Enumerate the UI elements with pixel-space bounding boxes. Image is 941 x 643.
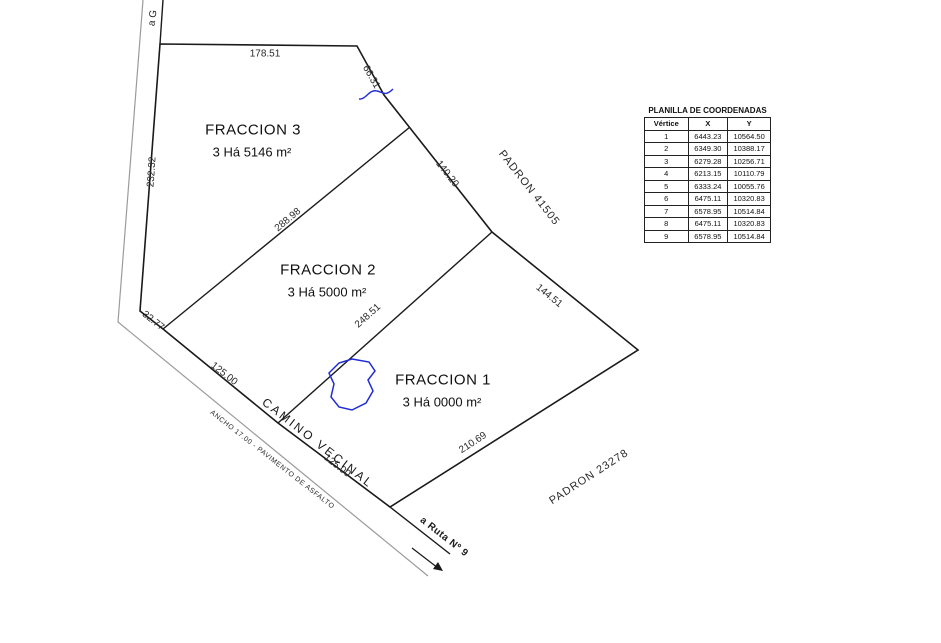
cell-x: 6333.24 — [688, 180, 728, 193]
cell-y: 10320.83 — [728, 218, 771, 231]
fraccion-3-area: 3 Há 5146 m² — [213, 145, 292, 160]
coordinates-table: PLANILLA DE COORDENADAS Vértice X Y 1 64… — [644, 106, 771, 243]
cell-x: 6578.95 — [688, 230, 728, 243]
cell-vertice: 6 — [645, 193, 689, 206]
table-row: 1 6443.23 10564.50 — [645, 130, 771, 143]
table-row: 4 6213.15 10110.79 — [645, 168, 771, 181]
cell-vertice: 5 — [645, 180, 689, 193]
cell-x: 6279.28 — [688, 155, 728, 168]
cell-vertice: 9 — [645, 230, 689, 243]
table-row: 9 6578.95 10514.84 — [645, 230, 771, 243]
col-header-x: X — [688, 118, 728, 131]
table-row: 8 6475.11 10320.83 — [645, 218, 771, 231]
coordinates-table-grid: Vértice X Y 1 6443.23 10564.50 2 6349.30… — [644, 117, 771, 243]
cell-vertice: 7 — [645, 205, 689, 218]
cell-y: 10564.50 — [728, 130, 771, 143]
cell-y: 10055.76 — [728, 180, 771, 193]
table-row: 6 6475.11 10320.83 — [645, 193, 771, 206]
cell-y: 10320.83 — [728, 193, 771, 206]
fraccion-1-area: 3 Há 0000 m² — [403, 395, 482, 410]
col-header-vertice: Vértice — [645, 118, 689, 131]
table-row: 2 6349.30 10388.17 — [645, 143, 771, 156]
survey-plan-page: FRACCION 3 3 Há 5146 m² FRACCION 2 3 Há … — [0, 0, 941, 643]
cell-x: 6213.15 — [688, 168, 728, 181]
cell-x: 6578.95 — [688, 205, 728, 218]
cell-vertice: 1 — [645, 130, 689, 143]
cell-x: 6475.11 — [688, 193, 728, 206]
cell-vertice: 4 — [645, 168, 689, 181]
fraccion-1-title: FRACCION 1 — [395, 372, 491, 389]
cell-vertice: 2 — [645, 143, 689, 156]
pond-outline — [329, 359, 375, 410]
coordinates-table-title: PLANILLA DE COORDENADAS — [644, 106, 771, 115]
col-header-y: Y — [728, 118, 771, 131]
cell-y: 10388.17 — [728, 143, 771, 156]
cell-y: 10514.84 — [728, 205, 771, 218]
table-header-row: Vértice X Y — [645, 118, 771, 131]
road-direction-arrow — [412, 548, 443, 571]
cell-vertice: 8 — [645, 218, 689, 231]
cell-x: 6475.11 — [688, 218, 728, 231]
table-row: 7 6578.95 10514.84 — [645, 205, 771, 218]
property-boundary — [140, 44, 638, 507]
cell-x: 6349.30 — [688, 143, 728, 156]
road-destination-north-label: a G — [146, 9, 159, 26]
table-row: 5 6333.24 10055.76 — [645, 180, 771, 193]
cell-y: 10256.71 — [728, 155, 771, 168]
table-row: 3 6279.28 10256.71 — [645, 155, 771, 168]
fraccion-3-title: FRACCION 3 — [205, 122, 301, 139]
road-inner-edge-north — [160, 0, 163, 44]
cell-x: 6443.23 — [688, 130, 728, 143]
cell-y: 10110.79 — [728, 168, 771, 181]
dimension-top-edge: 178.51 — [250, 49, 281, 60]
road-outer-edge-line — [118, 0, 428, 576]
fraccion-2-title: FRACCION 2 — [280, 262, 376, 279]
dimension-left-edge: 232.32 — [145, 156, 158, 187]
cell-vertice: 3 — [645, 155, 689, 168]
fraccion-2-area: 3 Há 5000 m² — [288, 285, 367, 300]
cell-y: 10514.84 — [728, 230, 771, 243]
stream-line — [359, 89, 393, 99]
survey-drawing — [0, 0, 941, 643]
